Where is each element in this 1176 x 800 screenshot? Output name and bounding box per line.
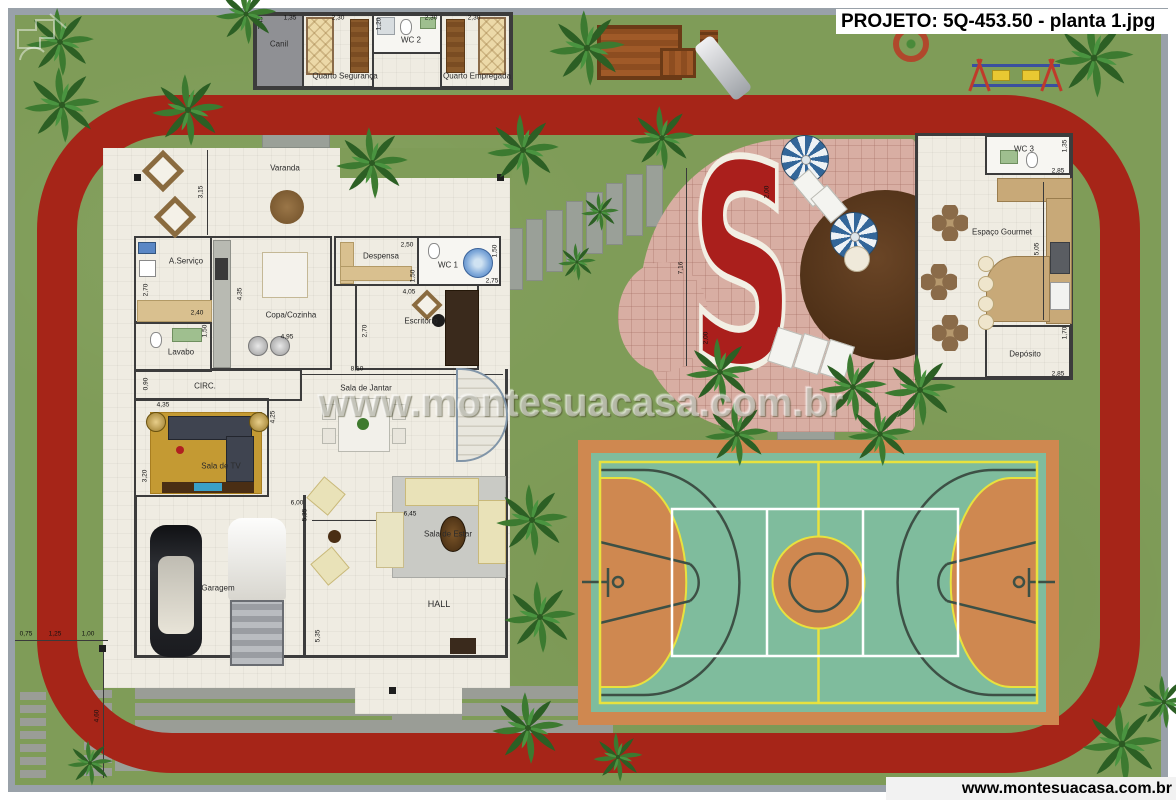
side-table (376, 512, 404, 568)
dim-tv-h: 4,25 (270, 411, 277, 424)
dim-line (15, 640, 108, 641)
label-wc3: WC 3 (1014, 145, 1034, 154)
label-wc1: WC 1 (438, 261, 458, 270)
dim-circ: 0,90 (143, 378, 150, 391)
dim-line (207, 150, 208, 235)
stepping-stones (20, 692, 46, 778)
label-quarto-seguranca: Quarto Segurança (312, 72, 377, 81)
dim-wc2-w: 2,30 (425, 15, 438, 22)
label-hall: HALL (428, 599, 451, 609)
label-sala-estar: Sala de Estar (424, 530, 472, 539)
dim-wc3-h: 1,35 (1062, 140, 1069, 153)
dim-qseg-w: 2,30 (332, 15, 345, 22)
fridge (1050, 242, 1070, 274)
dim-deposito-h: 1,70 (1062, 327, 1069, 340)
bar-stool (978, 276, 994, 292)
swing-seat (1022, 70, 1040, 81)
bush (580, 192, 620, 232)
website-url: www.montesuacasa.com.br (886, 777, 1176, 800)
bush (557, 242, 597, 282)
dim-hall-h: 5,35 (315, 630, 322, 643)
dim-line (1043, 182, 1044, 320)
deck-table (844, 246, 870, 272)
dim-estar-w: 6,00 (291, 500, 304, 507)
watermark-text: www.montesuacasa.com.br (318, 381, 858, 426)
walkway (355, 688, 462, 714)
stool (328, 530, 341, 543)
dim-jantar-w: 8,10 (351, 366, 364, 373)
room-circ (134, 369, 302, 401)
wall-garage-west (134, 497, 137, 658)
dim-canil-w: 1,35 (284, 15, 297, 22)
dim-escritorio-h: 2,70 (362, 325, 369, 338)
gourmet-table (932, 205, 968, 241)
tv-screen (194, 483, 222, 491)
label-deposito: Depósito (1009, 350, 1041, 359)
label-servico: A.Serviço (169, 257, 203, 266)
spa-tub (463, 248, 493, 278)
bar-stool (978, 314, 994, 330)
column-post (134, 174, 141, 181)
dim-site-1: 0,75 (20, 631, 33, 638)
dim-estar-h: 5,35 (302, 509, 309, 522)
swing-rail (972, 64, 1060, 67)
palm-tree (628, 104, 696, 172)
label-circ: CIRC. (194, 382, 216, 391)
bush (592, 731, 644, 783)
pantry-shelf (340, 266, 412, 281)
label-varanda: Varanda (270, 164, 300, 173)
sports-court (578, 440, 1059, 725)
play-platform-ext (660, 48, 696, 78)
dim-site-3: 1,00 (82, 631, 95, 638)
bar-stool (978, 296, 994, 312)
dresser (446, 19, 465, 73)
label-quarto-empregada: Quarto Empregada (443, 72, 511, 81)
column-post (99, 645, 106, 652)
project-title: PROJETO: 5Q-453.50 - planta 1.jpg (836, 9, 1176, 34)
dim-wc3-w: 2,85 (1052, 168, 1065, 175)
dim-varanda: 3,15 (198, 186, 205, 199)
washing-machine (139, 260, 156, 277)
palm-tree (547, 8, 627, 88)
label-despensa: Despensa (363, 252, 399, 261)
office-desk (445, 290, 479, 366)
dresser (350, 19, 369, 73)
dim-servico-h: 2,70 (143, 284, 150, 297)
toilet (400, 19, 412, 35)
label-lavabo: Lavabo (168, 348, 194, 357)
bar-stool (978, 256, 994, 272)
dim-wc1-h: 1,50 (492, 245, 499, 258)
dim-despensa-w: 2,50 (401, 242, 414, 249)
floor-plan-image: S 7,16 2,00 2,00 (0, 0, 1176, 800)
swing-seat (992, 70, 1010, 81)
label-escritorio: Escritório (404, 317, 437, 326)
palm-tree (334, 125, 410, 201)
bed (306, 17, 334, 75)
palm-tree (1136, 674, 1176, 730)
palm-tree (502, 579, 578, 655)
dim-tv-h2: 3,20 (142, 470, 149, 483)
vanity (172, 328, 202, 342)
sofa-l (226, 436, 254, 482)
palm-tree (214, 0, 278, 46)
dim-wc1-w: 2,75 (486, 278, 499, 285)
speaker (249, 412, 269, 432)
dining-chair (322, 428, 336, 444)
dim-wc2-h: 1,20 (376, 18, 383, 31)
gourmet-table (932, 315, 968, 351)
dim-espaco-h: 5,05 (1034, 243, 1041, 256)
dim-tv-w: 4,35 (157, 402, 170, 409)
car-sedan-roof (158, 556, 194, 634)
toilet (1026, 152, 1038, 168)
dim-servico-w: 2,40 (191, 310, 204, 317)
kitchen-table (262, 252, 308, 298)
palm-tree (485, 112, 561, 188)
dim-pool-h: 7,16 (678, 262, 685, 275)
laundry-sink (138, 242, 156, 254)
speaker (146, 412, 166, 432)
toilet (150, 332, 162, 348)
label-espaco-gourmet: Espaço Gourmet (972, 228, 1032, 237)
label-cozinha: Copa/Cozinha (266, 311, 317, 320)
veranda-table (270, 190, 304, 224)
dim-site-left: 4,60 (94, 710, 101, 723)
palm-tree (494, 482, 570, 558)
dim-cozinha-h: 4,35 (237, 288, 244, 301)
dim-deposito-w: 2,85 (1052, 371, 1065, 378)
gourmet-table (921, 264, 957, 300)
pot (248, 336, 268, 356)
label-wc2: WC 2 (401, 36, 421, 45)
dim-despensa-h: 1,50 (410, 270, 417, 283)
bush (66, 739, 114, 787)
cooktop (1050, 282, 1070, 310)
sofa (405, 478, 479, 506)
column-post (389, 687, 396, 694)
dim-pool-top: 2,00 (764, 186, 771, 199)
swing-set (972, 58, 1060, 94)
hall-console (450, 638, 476, 654)
palm-tree (490, 690, 566, 766)
toilet (428, 243, 440, 259)
car-pickup-cab (228, 518, 286, 600)
dim-estar-w2: 6,45 (404, 511, 417, 518)
dim-escritorio-w: 4,05 (403, 289, 416, 296)
builder-logo-watermark (10, 8, 74, 72)
stove (215, 258, 228, 280)
palm-tree (150, 72, 226, 148)
label-garagem: Garagem (201, 584, 234, 593)
dim-site-2: 1,25 (49, 631, 62, 638)
label-sala-tv: Sala de TV (201, 462, 240, 471)
dim-qemp-w: 2,30 (468, 15, 481, 22)
dining-chair (392, 428, 406, 444)
bar-counter (986, 256, 1050, 322)
rug-flower (176, 446, 184, 454)
bed (478, 17, 506, 75)
car-pickup-bed (230, 600, 284, 666)
dim-lavabo: 1,50 (202, 325, 209, 338)
dim-cozinha-w: 4,95 (281, 334, 294, 341)
